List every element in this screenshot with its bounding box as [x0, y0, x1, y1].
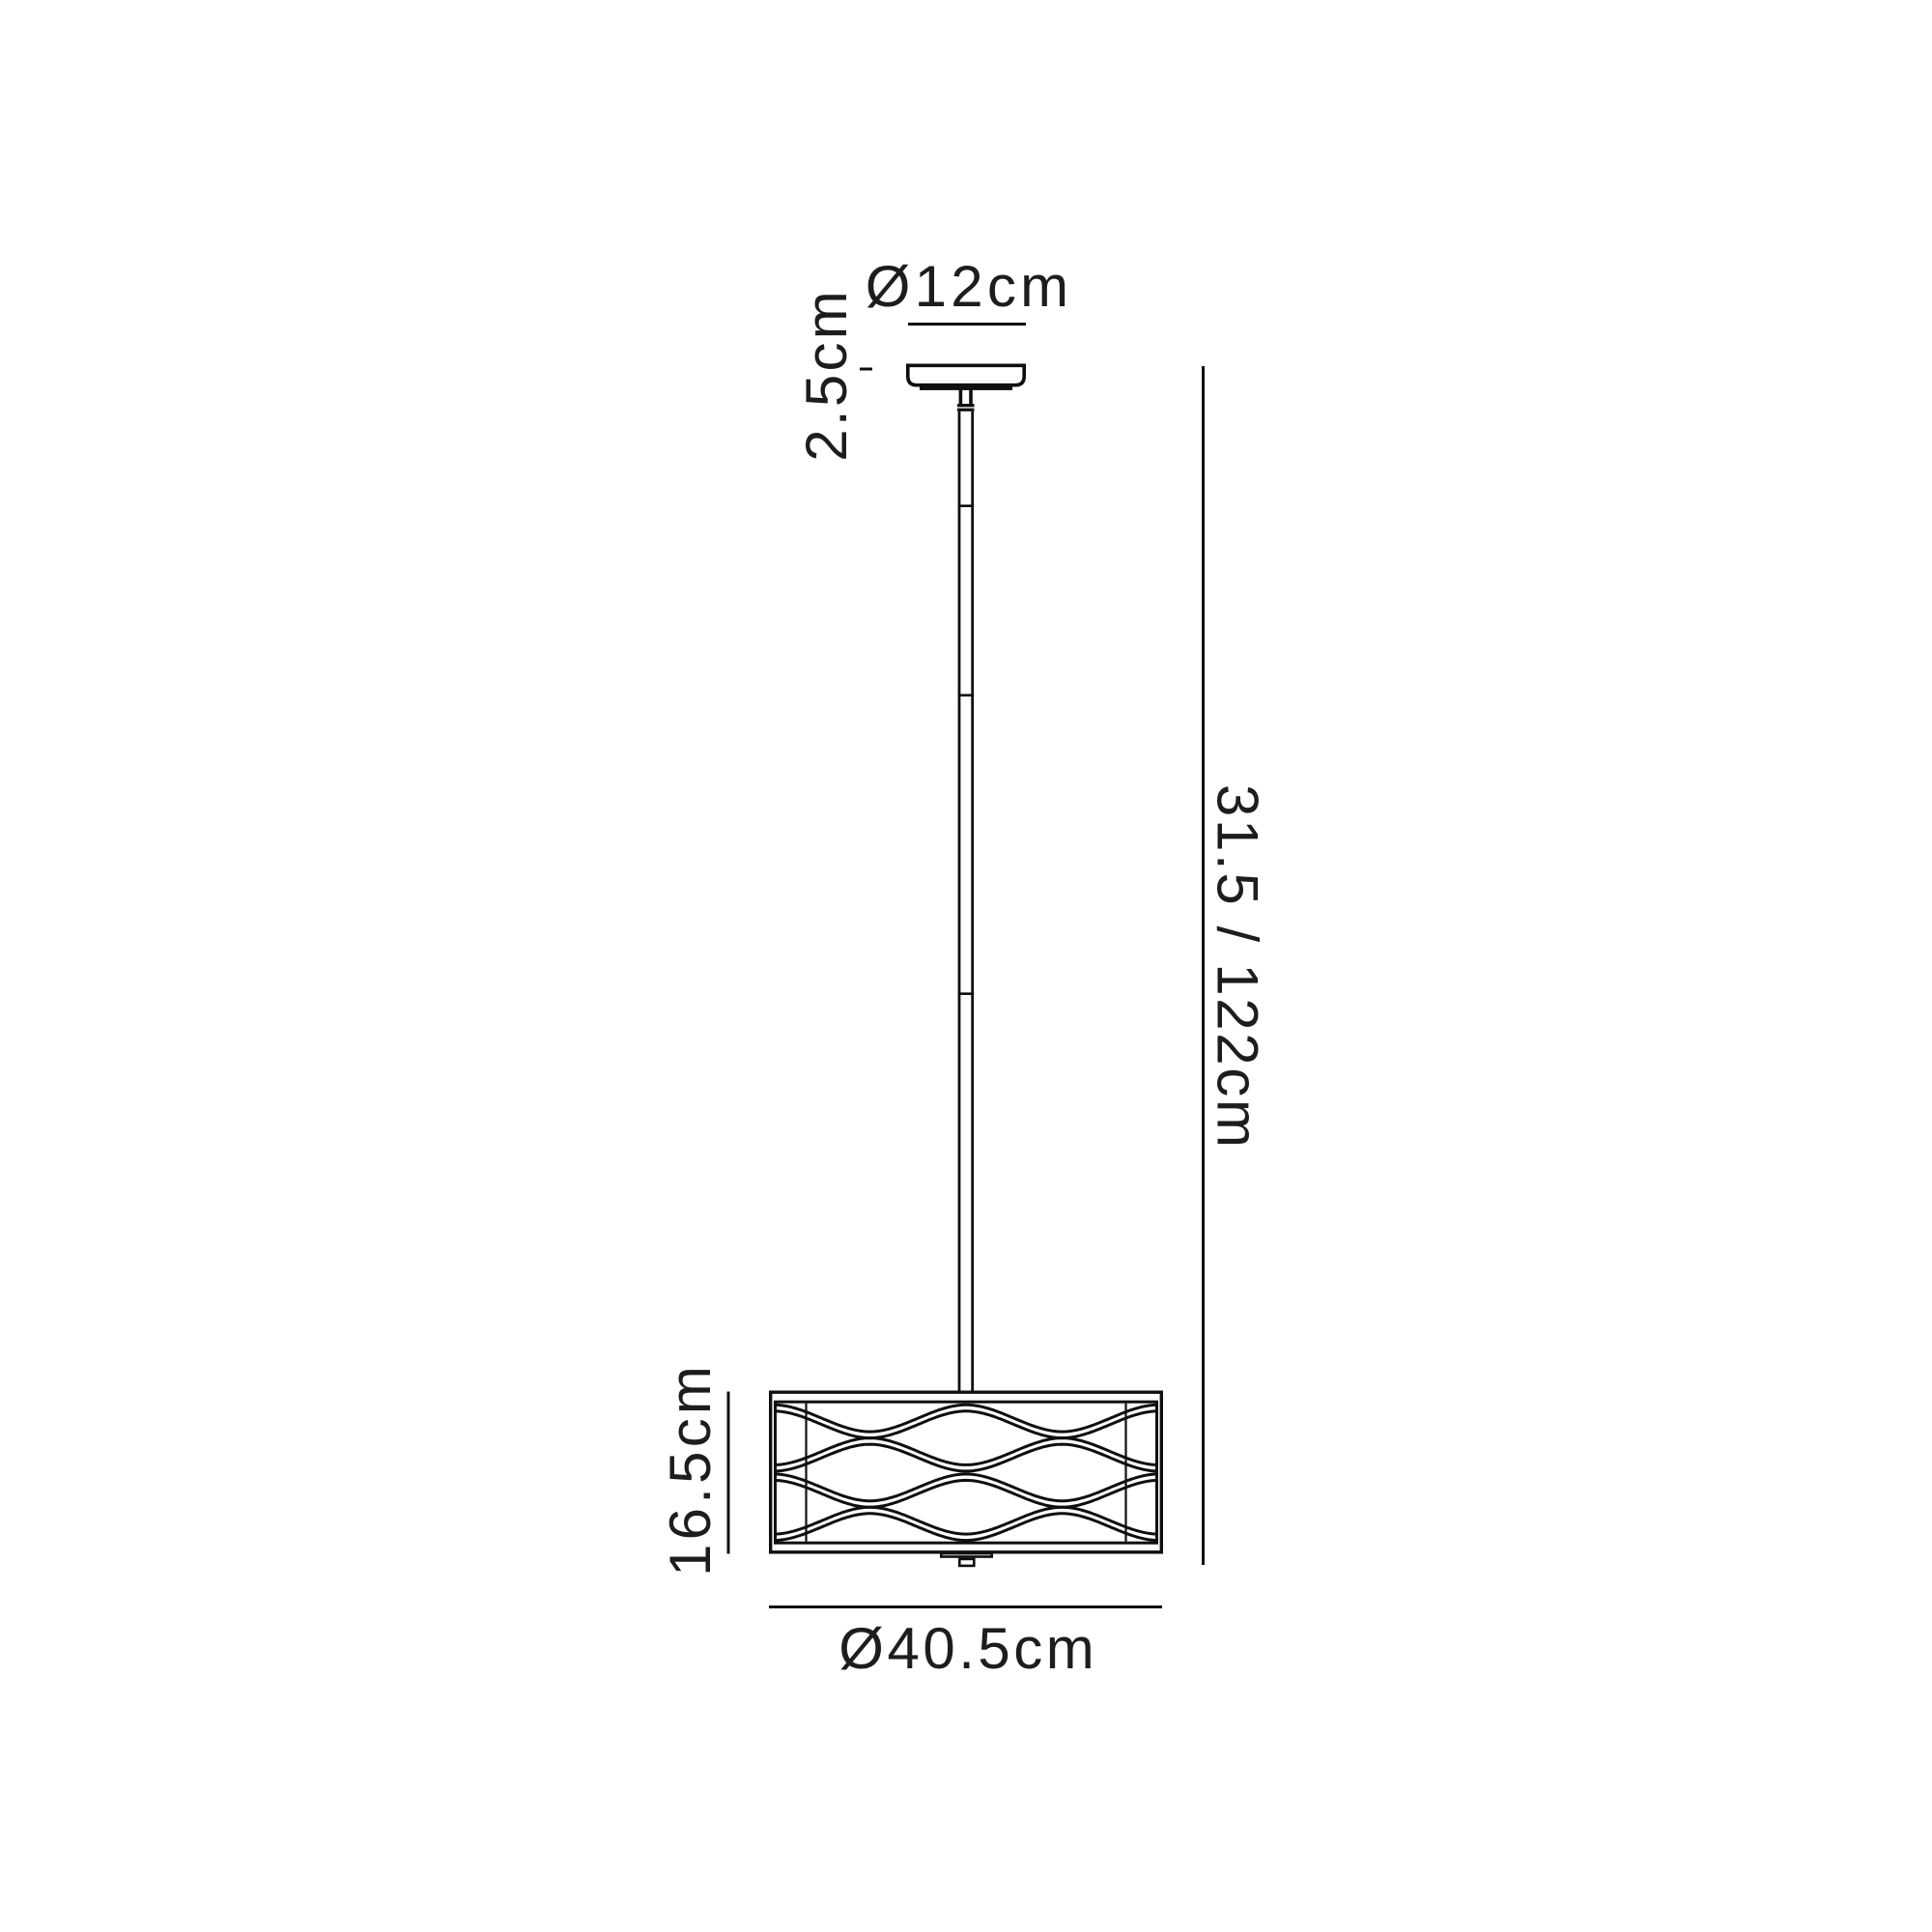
- svg-text:Ø40.5cm: Ø40.5cm: [838, 1616, 1097, 1681]
- svg-text:31.5 / 122cm: 31.5 / 122cm: [1206, 784, 1270, 1151]
- svg-text:2.5cm: 2.5cm: [794, 288, 859, 462]
- svg-text:16.5cm: 16.5cm: [658, 1362, 723, 1577]
- svg-text:Ø12cm: Ø12cm: [866, 254, 1073, 319]
